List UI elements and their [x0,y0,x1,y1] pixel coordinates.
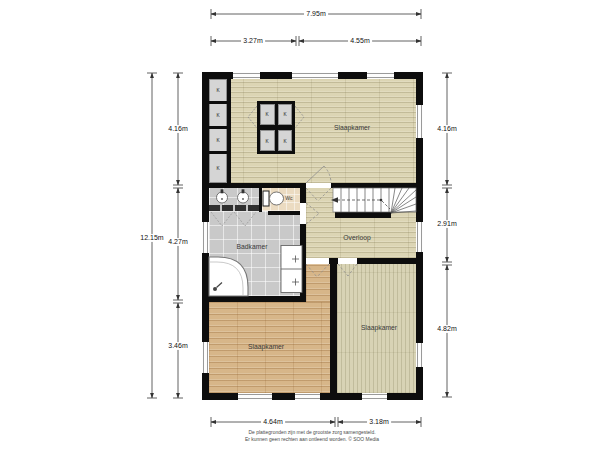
footer-disclaimer-line1: De plattegronden zijn met de grootste zo… [248,429,375,434]
dim-label-left-b: 4.27m [166,238,190,246]
room-label-bedroom-bottom-left: Slaapkamer [248,343,284,351]
floor-landing [306,188,416,258]
window-right-3 [416,343,423,367]
dim-label-top-b: 4.55m [348,37,372,45]
dim-label-left-total: 12.15m [138,234,166,242]
window-top-2 [292,72,338,79]
closet-label: K [216,112,219,118]
window-bottom-1 [238,393,272,400]
window-right-1 [416,105,423,138]
window-bottom-2 [295,393,320,400]
floor-wc [262,188,300,211]
wall-bathroom-bottom [202,296,306,302]
wall-stair-support [335,212,391,218]
window-top-3 [367,72,394,79]
dim-label-left-a: 4.16m [166,125,190,133]
dim-label-left-c: 3.46m [166,342,190,350]
room-label-bathroom: Badkamer [237,243,268,251]
closet-label: K [216,87,219,93]
footer-disclaimer-line2: Er kunnen geen rechten aan ontleend word… [245,436,379,441]
dim-label-bottom-b: 3.18m [367,418,391,426]
closet-label: K [283,111,286,117]
floorplan-canvas: Slaapkamer Wc Badkamer Overloop Slaapkam… [0,0,600,450]
dim-label-right-c: 4.82m [435,325,459,333]
closet-label: K [265,111,268,117]
closet-label: K [216,137,219,143]
wall-bathroom-landing-upper [300,183,306,203]
wall-wc-bottom [268,211,300,215]
wall-mid-a [202,183,305,188]
wall-wc-left [259,186,262,212]
dim-label-right-a: 4.16m [435,125,459,133]
wall-bedroom-divider [330,258,337,400]
window-left-1 [202,222,209,253]
bathroom-counter [209,205,259,211]
closet-divider [209,151,227,154]
room-label-bedroom-top: Slaapkamer [334,124,370,132]
room-label-wc: Wc [285,195,292,201]
dim-label-bottom-a: 4.64m [261,418,285,426]
closet-label: K [265,138,268,144]
closet-column-wall [227,79,231,183]
wall-bathroom-landing-lower [300,224,306,302]
window-right-2 [416,222,423,252]
room-label-landing: Overloop [343,234,370,242]
closet-label: K [216,165,219,171]
floor-bedroom-top [209,79,416,183]
closet-divider [209,101,227,104]
wall-landing-bottom-b [357,258,423,264]
dim-label-top-total: 7.95m [304,10,328,18]
floor-bedroom-bottom-left-strip [306,264,330,302]
room-label-bedroom-bottom-right: Slaapkamer [361,324,397,332]
closet-label: K [283,138,286,144]
window-top-1 [233,72,260,79]
wall-mid-b [331,183,423,188]
dim-label-top-a: 3.27m [241,37,265,45]
window-bottom-3 [362,393,387,400]
closet-divider [209,126,227,129]
dim-label-right-b: 2.91m [435,220,459,228]
window-left-2 [202,342,209,373]
